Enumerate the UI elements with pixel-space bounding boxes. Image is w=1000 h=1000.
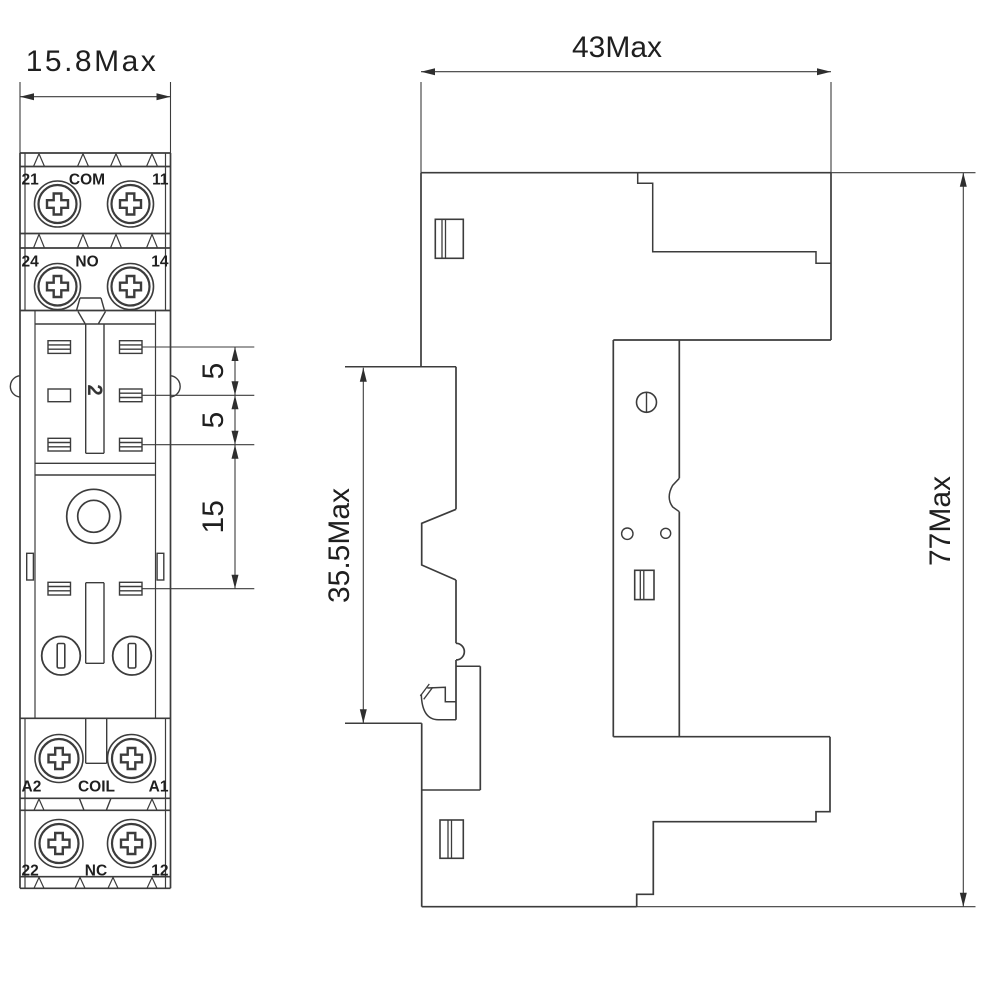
- front-view: 15.8Max 21 COM 11 24 NO 14 A2 COIL A1 22…: [10, 45, 254, 888]
- terminal-label-no: NO: [75, 254, 98, 271]
- pitch-dim-label-5b: 5: [197, 412, 230, 429]
- side-height-dimension: 77Max: [637, 173, 976, 907]
- mounting-hole-inner: [78, 500, 110, 532]
- contact-slots: [48, 341, 142, 595]
- screw-terminal: [35, 735, 83, 783]
- center-channel-lower: [86, 583, 104, 664]
- side-tab: [27, 553, 34, 580]
- socket-number-label: 2: [84, 385, 105, 396]
- terminal-label-11: 11: [152, 172, 169, 189]
- terminal-label-12: 12: [151, 863, 168, 880]
- terminal-label-14: 14: [151, 254, 169, 271]
- side-depth-dimension-label: 35.5Max: [323, 488, 356, 603]
- side-height-dimension-label: 77Max: [924, 476, 957, 566]
- technical-drawing-page: 15.8Max 21 COM 11 24 NO 14 A2 COIL A1 22…: [0, 0, 1000, 1000]
- small-hole: [661, 528, 671, 538]
- side-width-dimension: 43Max: [421, 31, 831, 173]
- upper-slot-lines: [442, 219, 446, 258]
- mounting-hole-outer: [67, 489, 121, 543]
- side-view: 43Max 35.5Max 77Max: [323, 31, 976, 907]
- side-depth-dimension: 35.5Max: [323, 368, 367, 724]
- terminal-label-com: COM: [69, 172, 105, 189]
- upper-slot: [435, 219, 463, 258]
- small-hole: [622, 528, 633, 539]
- funnel-notches: [35, 298, 156, 810]
- terminal-label-a1: A1: [149, 779, 169, 796]
- terminal-label-a2: A2: [22, 779, 42, 796]
- dimension-line: [421, 72, 831, 173]
- pitch-dim-label-5a: 5: [197, 363, 230, 380]
- screw-terminal: [35, 264, 81, 310]
- front-width-dimension: 15.8Max: [20, 45, 171, 153]
- dimension-line: [20, 82, 171, 153]
- pitch-dimensions: 5 5 15: [142, 347, 254, 589]
- slotted-screw: [113, 636, 152, 675]
- side-width-dimension-label: 43Max: [572, 31, 662, 64]
- lower-slot-lines: [448, 820, 452, 858]
- screw-terminal: [35, 181, 81, 227]
- side-tab: [157, 553, 164, 580]
- coil-gap: [86, 718, 107, 763]
- screw-terminal: [35, 820, 83, 868]
- socket-divider-lines: [35, 463, 156, 475]
- terminal-label-21: 21: [22, 172, 40, 189]
- terminal-label-24: 24: [22, 254, 40, 271]
- terminal-label-22: 22: [22, 863, 39, 880]
- screw-terminal: [108, 181, 154, 227]
- screw-terminal: [108, 264, 154, 310]
- relay-socket-drawing: 15.8Max 21 COM 11 24 NO 14 A2 COIL A1 22…: [0, 0, 1000, 1000]
- pitch-dim-label-15: 15: [197, 500, 230, 533]
- screw-terminal: [108, 820, 156, 868]
- din-slot-lines: [640, 570, 644, 599]
- socket-area: 2: [10, 324, 180, 763]
- terminal-label-nc: NC: [85, 863, 107, 880]
- slotted-screw: [42, 636, 81, 675]
- terminal-label-coil: COIL: [78, 779, 115, 796]
- side-profile-details: [345, 173, 831, 790]
- front-width-dimension-label: 15.8Max: [26, 45, 159, 78]
- screw-terminal: [108, 735, 156, 783]
